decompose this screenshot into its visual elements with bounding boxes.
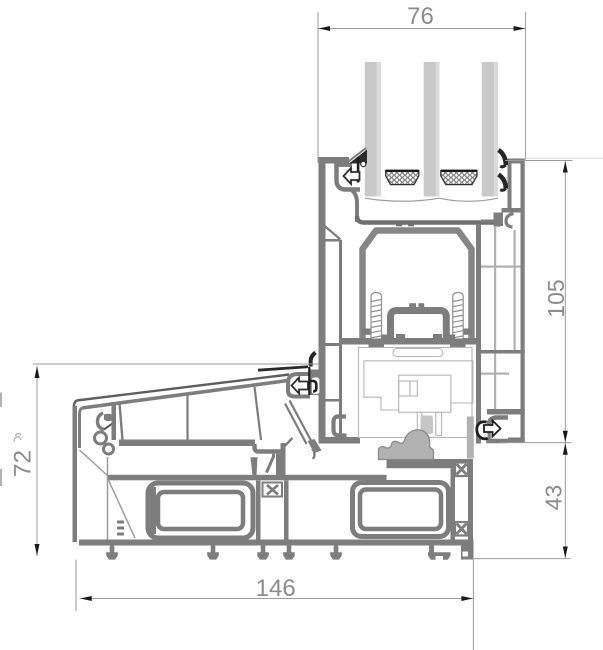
svg-text:105: 105 bbox=[543, 279, 569, 317]
svg-text:43: 43 bbox=[541, 485, 567, 511]
svg-text:72: 72 bbox=[10, 450, 37, 477]
svg-text:146: 146 bbox=[256, 575, 296, 602]
svg-text:76: 76 bbox=[407, 3, 434, 30]
